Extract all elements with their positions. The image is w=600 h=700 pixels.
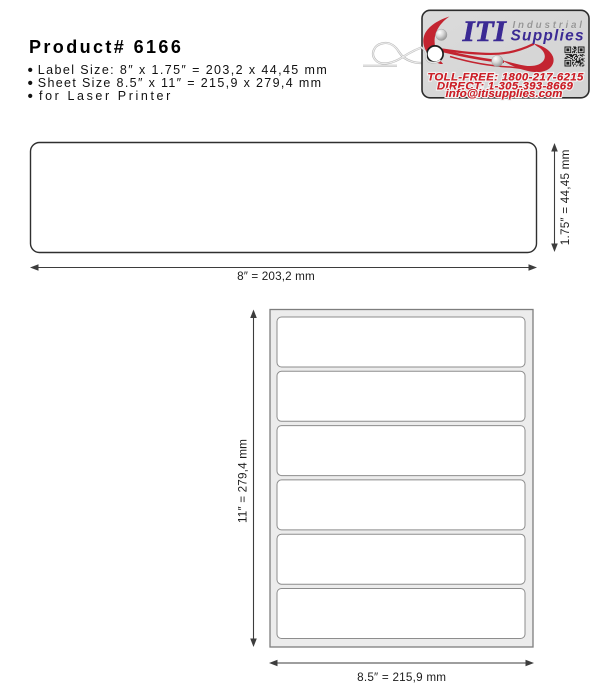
svg-text:ITI: ITI (461, 15, 507, 48)
svg-text:Supplies: Supplies (511, 27, 584, 44)
svg-text:8.5″ = 215,9 mm: 8.5″ = 215,9 mm (357, 671, 446, 684)
svg-text:11″ = 279,4 mm: 11″ = 279,4 mm (237, 439, 250, 523)
svg-text:8″ = 203,2 mm: 8″ = 203,2 mm (237, 270, 315, 283)
svg-text:info@itisupplies.com: info@itisupplies.com (446, 88, 563, 100)
svg-text:1.75″ = 44,45 mm: 1.75″ = 44,45 mm (559, 149, 572, 245)
